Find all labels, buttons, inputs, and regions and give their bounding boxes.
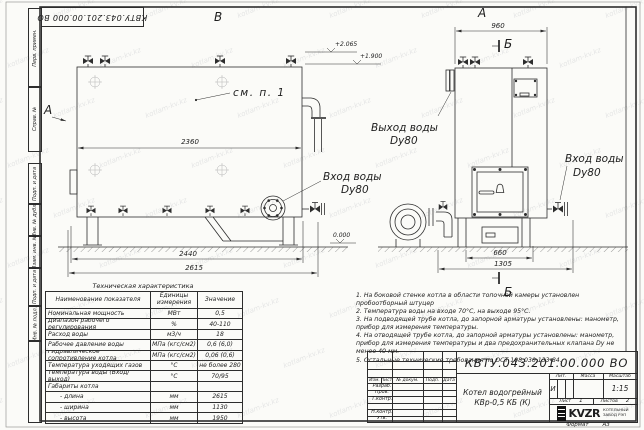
inlet-b-label-1: Вход воды <box>323 171 382 183</box>
inlet-a-label-2: Dy80 <box>573 167 601 179</box>
company-name-line2: ЗАВОД РЭП <box>603 413 629 418</box>
section-b-top-label: Б <box>504 37 512 51</box>
view-b-linework <box>58 56 348 252</box>
elevation-outlet: +1.900 <box>360 53 382 60</box>
company-name: КОТЕЛЬНЫЙ ЗАВОД РЭП <box>603 408 629 418</box>
tb-lit-value: И <box>549 379 557 398</box>
furnace-door <box>472 167 528 217</box>
tb-header-podp: Подп. <box>423 377 442 383</box>
elevation-ground: 0.000 <box>333 232 350 239</box>
tb-header-docnum: № докум. <box>392 377 423 383</box>
see-note-label: см. п. 1 <box>233 87 286 99</box>
inlet-a-label-1: Вход воды <box>565 153 624 165</box>
inlet-a-leader <box>560 166 567 200</box>
format-note: Формат А3 <box>540 422 636 428</box>
format-label: Формат <box>566 422 588 428</box>
outlet-a-leader <box>438 92 451 116</box>
tb-doc-number: КВТУ.043.201.00.000 ВО <box>456 352 637 373</box>
elevation-marks <box>305 48 381 243</box>
tb-header-data: Дата <box>442 377 456 383</box>
dim-front-width: 960 <box>491 22 505 30</box>
inlet-flange-b <box>261 196 285 220</box>
tb-scale-value: 1:15 <box>603 379 637 398</box>
dim-door-span: 660 <box>493 249 507 257</box>
view-arrow-a-label: А <box>43 103 52 117</box>
dim-base-span: 1305 <box>494 260 512 268</box>
margin-field-vzam-inv: Взам. инв. № <box>28 235 42 269</box>
margin-field-perv-primen: Перв. примен. <box>28 8 42 88</box>
title-block: Изм. Лист № докум. Подп. Дата Разраб. Пр… <box>367 351 638 423</box>
tb-signer-utv: Утв. <box>368 416 394 423</box>
outlet-a-label-2: Dy80 <box>390 135 418 147</box>
see-note-leader <box>196 93 230 100</box>
view-a-title: А <box>477 6 486 20</box>
margin-field-inv-podl: Инв. № подл. <box>28 305 42 342</box>
view-arrow-a <box>52 117 66 121</box>
elevation-top: +2.065 <box>335 41 357 48</box>
top-stamp: КВТУ.043.201.00.000 ВО <box>41 7 144 27</box>
top-stamp-text: КВТУ.043.201.00.000 ВО <box>37 13 147 22</box>
dim-support-span: 2440 <box>179 250 197 258</box>
margin-field-podp-data-2: Подп. и дата <box>28 267 42 307</box>
tb-mass-label: Масса <box>573 373 603 379</box>
dim-shell-length: 2360 <box>181 138 199 146</box>
tb-product-name-line2: КВр-0,5 КБ (К) <box>474 398 530 408</box>
tb-company-cell: KVZR КОТЕЛЬНЫЙ ЗАВОД РЭП <box>549 404 637 422</box>
inlet-b-label-2: Dy80 <box>341 184 369 196</box>
dim-overall-length: 2615 <box>185 264 203 272</box>
fan <box>390 204 426 247</box>
margin-field-empty <box>28 340 42 423</box>
margin-field-inv-dubl: Инв. № дубл. <box>28 203 42 237</box>
tech-table-grid: Наименование показателяЕдиницы измерения… <box>45 291 243 424</box>
tb-sheet-label: Лист <box>559 399 571 404</box>
margin-field-podp-data-1: Подп. и дата <box>28 163 42 205</box>
outlet-a-label-1: Выход воды <box>371 122 438 134</box>
drawing-sheet: kotlam-kv.kzkotlam-kv.kzkotlam-kv.kzkotl… <box>0 0 644 430</box>
tb-signer-tkontr: Т.контр. <box>368 396 394 403</box>
view-b-title: В <box>214 10 222 24</box>
margin-field-sprav-no: Справ. № <box>28 86 42 152</box>
tb-sheets-label: Листов <box>601 399 618 404</box>
company-logo-icon <box>557 406 566 421</box>
format-value: А3 <box>603 422 610 428</box>
tb-product-name: Котел водогрейный КВр-0,5 КБ (К) <box>456 373 549 422</box>
company-logo-text: KVZR <box>568 407 599 420</box>
tech-table-title: Техническая характеристика <box>45 282 241 290</box>
tb-product-name-line1: Котел водогрейный <box>463 388 542 398</box>
